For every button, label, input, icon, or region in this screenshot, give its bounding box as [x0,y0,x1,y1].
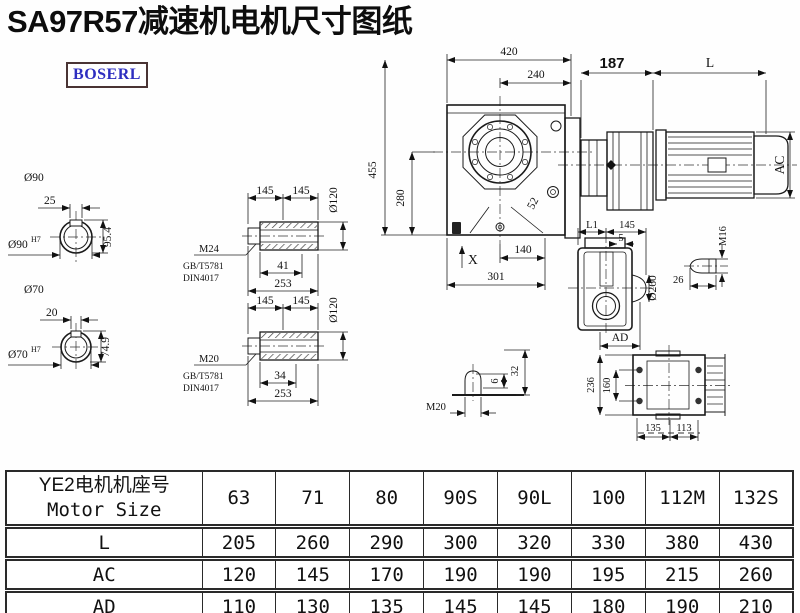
dim-420: 420 [500,46,518,58]
dim-L: L [706,55,714,70]
dim-145-a: 145 [256,185,274,197]
dim-145-side: 145 [619,220,635,231]
dim-280: 280 [395,189,407,207]
col-header-132s: 132S [719,471,793,527]
cell-AD-100: 180 [571,591,645,613]
dim-bore-70-tol: H7 [31,345,41,354]
label-m20: M20 [199,354,219,365]
table-header-row: YE2电机机座号 Motor Size 63 71 80 90S 90L 100… [6,471,793,527]
col-header-80: 80 [350,471,424,527]
label-gb5781-top: GB/T5781 [183,262,224,272]
cell-L-132s: 430 [719,527,793,559]
dim-height-95-4: 95.4 [102,227,114,247]
col-header-90s: 90S [424,471,498,527]
dim-52: 52 [525,195,541,211]
cell-L-90s: 300 [424,527,498,559]
label-m20-breather: M20 [426,402,446,413]
cell-L-112m: 380 [645,527,719,559]
dim-AD: AD [612,332,629,344]
dim-160: 160 [602,378,613,394]
cell-AD-90s: 145 [424,591,498,613]
motor-size-label-en: Motor Size [7,498,202,522]
technical-drawing: 25 Ø90 95.4 Ø90 H7 20 Ø70 74.9 Ø70 H7 [0,40,800,460]
plug-detail-m16: M16 26 [673,226,729,290]
col-header-90l: 90L [498,471,572,527]
dim-145-d: 145 [292,295,310,307]
dim-5: 5 [618,233,623,244]
dim-145-c: 145 [256,295,274,307]
cell-AC-90l: 190 [498,559,572,591]
label-din4017-bottom: DIN4017 [183,384,219,394]
row-label-AC: AC [6,559,202,591]
dim-dia-120-top: Ø120 [328,187,340,213]
label-x: X [468,252,478,267]
table-row-AD: AD 110 130 135 145 145 180 190 210 [6,591,793,613]
dim-height-74-9: 74.9 [100,337,112,357]
cell-L-71: 260 [276,527,350,559]
dim-135: 135 [645,423,661,434]
dim-bore-90-tol: H7 [31,235,41,244]
cell-AD-90l: 145 [498,591,572,613]
cell-L-80: 290 [350,527,424,559]
drain-plug [452,222,461,234]
cell-AC-90s: 190 [424,559,498,591]
label-m24: M24 [199,244,220,255]
cell-L-90l: 320 [498,527,572,559]
dim-140: 140 [514,244,532,256]
cell-AD-112m: 190 [645,591,719,613]
dim-240: 240 [527,69,545,81]
table-row-AC: AC 120 145 170 190 190 195 215 260 [6,559,793,591]
cell-AD-71: 130 [276,591,350,613]
hollow-shaft-view-m20: 145 145 Ø120 M20 GB/T5781 DIN4017 34 253 [183,295,348,406]
dim-187: 187 [599,55,624,72]
dim-keyway-25: 25 [44,195,56,207]
dim-145-b: 145 [292,185,310,197]
cell-L-100: 330 [571,527,645,559]
dim-dia-70: Ø70 [24,284,44,296]
dim-dia-120-bottom: Ø120 [328,297,340,323]
dim-6: 6 [490,378,501,383]
label-din4017-top: DIN4017 [183,274,219,284]
cell-AC-100: 195 [571,559,645,591]
cell-AC-112m: 215 [645,559,719,591]
hollow-shaft-view-m24: 145 145 Ø120 M24 GB/T5781 DIN4017 41 253 [183,185,348,296]
cell-AC-132s: 260 [719,559,793,591]
col-header-112m: 112M [645,471,719,527]
table-header-motor-size: YE2电机机座号 Motor Size [6,471,202,527]
shaft-end-view-90: 25 Ø90 95.4 Ø90 H7 [8,172,114,263]
table-row-L: L 205 260 290 300 320 330 380 430 [6,527,793,559]
page-title: SA97R57减速机电机尺寸图纸 [7,0,412,41]
dim-41: 41 [277,260,289,272]
dim-113: 113 [676,423,691,434]
col-header-71: 71 [276,471,350,527]
motor-size-table: YE2电机机座号 Motor Size 63 71 80 90S 90L 100… [5,470,794,613]
row-label-AD: AD [6,591,202,613]
dim-32: 32 [510,366,521,377]
dim-253-bottom: 253 [274,388,292,400]
dim-bore-70: Ø70 [8,349,28,361]
dim-AC: AC [772,156,787,175]
cell-AD-132s: 210 [719,591,793,613]
dim-dia-90: Ø90 [24,172,44,184]
dim-455: 455 [367,161,379,179]
dim-253-top: 253 [274,278,292,290]
cell-AD-80: 135 [350,591,424,613]
col-header-63: 63 [202,471,276,527]
cell-L-63: 205 [202,527,276,559]
dim-236: 236 [586,377,597,393]
rear-flange-view: 236 160 135 113 [586,345,733,441]
cell-AC-71: 145 [276,559,350,591]
label-gb5781-bottom: GB/T5781 [183,372,224,382]
dim-L1: L1 [586,220,598,231]
cell-AC-63: 120 [202,559,276,591]
dim-26: 26 [673,275,684,286]
gearbox-main-view: 420 240 187 L 455 280 52 140 301 X [367,46,797,290]
row-label-L: L [6,527,202,559]
breather-detail-m20: M20 6 32 [426,350,530,417]
dim-34: 34 [274,370,286,382]
cell-AC-80: 170 [350,559,424,591]
cell-AD-63: 110 [202,591,276,613]
label-m16: M16 [718,226,729,246]
dim-301: 301 [487,271,505,283]
dim-bore-90: Ø90 [8,239,28,251]
gearbox-side-view: L1 145 5 Ø260 AD [568,220,659,350]
motor-size-label-zh: YE2电机机座号 [7,474,202,498]
page: SA97R57减速机电机尺寸图纸 BOSERL 25 Ø90 95.4 Ø90 … [0,0,800,613]
shaft-end-view-70: 20 Ø70 74.9 Ø70 H7 [8,284,112,371]
col-header-100: 100 [571,471,645,527]
dim-keyway-20: 20 [46,307,58,319]
dim-dia-260: Ø260 [647,275,659,301]
motor-terminal-box [708,158,726,172]
